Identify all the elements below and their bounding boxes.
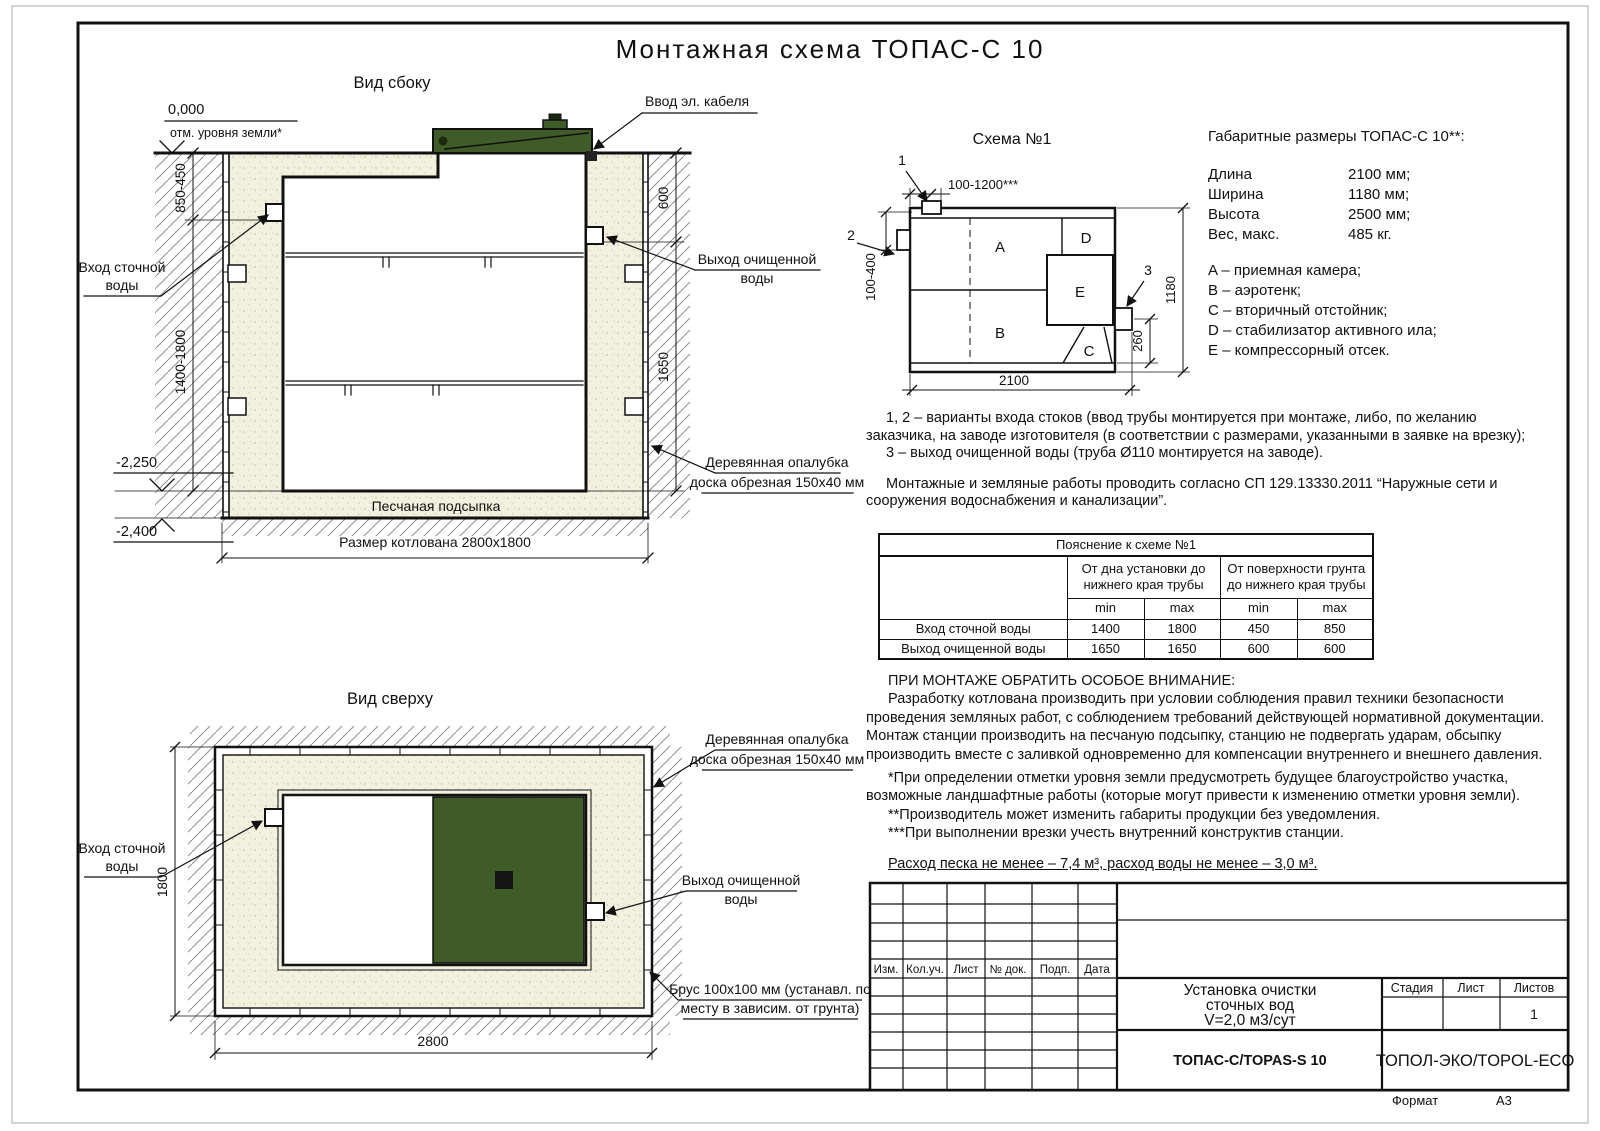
sc-comp-e: E <box>1075 284 1085 301</box>
pipe-table-group2: От поверхности грунта до нижнего края тр… <box>1220 556 1373 598</box>
footnote-3: ***При выполнении врезки учесть внутренн… <box>866 824 1556 842</box>
table-row: Вход сточной воды 1400 1800 450 850 <box>879 619 1373 639</box>
stamp-col-data: Дата <box>1084 964 1110 976</box>
attention-block: ПРИ МОНТАЖЕ ОБРАТИТЬ ОСОБОЕ ВНИМАНИЕ: Ра… <box>866 672 1556 873</box>
lid-vent-base <box>543 120 567 129</box>
specs-title: Габаритные размеры ТОПАС-С 10**: <box>1208 128 1578 145</box>
lid-handle <box>439 137 448 146</box>
company-name: ТОПОЛ-ЭКО/TOPOL-ECO <box>1376 1052 1575 1070</box>
stamp-col-podp: Подп. <box>1040 964 1071 976</box>
spec-row: Ширина 1180 мм; <box>1208 185 1578 205</box>
elevation-zero: 0,000 отм. уровня земли* <box>160 102 297 153</box>
svg-text:Брус 100x100 мм (устанавл. по: Брус 100x100 мм (устанавл. по <box>669 981 871 997</box>
schema-title: Схема №1 <box>973 131 1052 148</box>
svg-text:воды: воды <box>741 270 774 286</box>
compartment-legend: A – приемная камера; B – аэротенк; C – в… <box>1208 261 1578 361</box>
sc-comp-c: C <box>1084 343 1095 360</box>
pipe-table-group1: От дна установки до нижнего края трубы <box>1067 556 1220 598</box>
svg-text:воды: воды <box>725 891 758 907</box>
label-sand: Песчаная подсыпка <box>372 498 501 514</box>
tv-hatch-top <box>190 726 670 747</box>
pipe-table-title: Пояснение к схеме №1 <box>879 534 1373 556</box>
tv-outlet-stub <box>586 903 604 920</box>
sheets-label: Листов <box>1514 981 1555 995</box>
svg-text:воды: воды <box>106 277 139 293</box>
label-cable: Ввод эл. кабеля <box>594 93 757 149</box>
svg-text:Деревянная опалубка: Деревянная опалубка <box>705 731 848 747</box>
note-norms: Монтажные и земляные работы проводить со… <box>866 476 1546 511</box>
svg-text:-2,250: -2,250 <box>116 455 157 471</box>
label-pit-size: Размер котлована 2800x1800 <box>339 534 531 550</box>
pipe-table-corner <box>879 556 1067 619</box>
svg-text:Выход очищенной: Выход очищенной <box>698 251 817 267</box>
tank-lid <box>433 114 597 161</box>
svg-text:Деревянная опалубка: Деревянная опалубка <box>705 454 848 470</box>
spec-row: Длина 2100 мм; <box>1208 165 1578 185</box>
stamp-col-ndok: № док. <box>990 964 1027 976</box>
svg-text:воды: воды <box>106 858 139 874</box>
footnote-2: **Производитель может изменить габариты … <box>866 806 1556 824</box>
top-view-title: Вид сверху <box>347 690 434 708</box>
tank-body <box>283 153 586 491</box>
stamp-col-izm: Изм. <box>874 964 899 976</box>
spec-row: Высота 2500 мм; <box>1208 205 1578 225</box>
model-code: ТОПАС-С/TOPAS-S 10 <box>1173 1053 1326 1069</box>
attention-title: ПРИ МОНТАЖЕ ОБРАТИТЬ ОСОБОЕ ВНИМАНИЕ: <box>866 672 1556 690</box>
sc-dim-left: 100-400 <box>863 253 878 301</box>
svg-text:Вход сточной: Вход сточной <box>79 840 166 856</box>
consumption-note: Расход песка не менее – 7,4 м³, расход в… <box>866 855 1556 873</box>
svg-text:отм. уровня земли*: отм. уровня земли* <box>170 126 282 140</box>
pipe-table: Пояснение к схеме №1 От дна установки до… <box>878 533 1374 660</box>
sc-comp-a: A <box>995 239 1005 256</box>
page-title: Монтажная схема ТОПАС-С 10 <box>616 34 1045 64</box>
dim-outlet-depth: 600 <box>656 187 671 210</box>
table-row: Выход очищенной воды 1650 1650 600 600 <box>879 639 1373 659</box>
note-variants: 1, 2 – варианты входа стоков (ввод трубы… <box>866 410 1546 445</box>
svg-text:Выход очищенной: Выход очищенной <box>682 872 801 888</box>
sc-dim-bottom: 2100 <box>999 373 1029 388</box>
sc-marker-2: 2 <box>847 227 855 243</box>
sc-dim-top: 100-1200*** <box>948 177 1018 192</box>
svg-text:-2,400: -2,400 <box>116 524 157 540</box>
format-value: А3 <box>1496 1093 1512 1108</box>
tv-label-beam: Брус 100x100 мм (устанавл. по месту в за… <box>650 972 871 1019</box>
sc-stub-2 <box>897 230 910 250</box>
inlet-stub <box>266 204 283 221</box>
sc-comp-d: D <box>1081 230 1092 247</box>
svg-text:2800: 2800 <box>417 1033 448 1049</box>
title-block: Изм. Кол.уч. Лист № док. Подп. Дата Уста… <box>870 883 1574 1108</box>
svg-text:Вход сточной: Вход сточной <box>79 259 166 275</box>
stamp-col-koluch: Кол.уч. <box>906 964 944 976</box>
svg-text:Ввод эл. кабеля: Ввод эл. кабеля <box>645 93 749 109</box>
stage-label: Стадия <box>1391 981 1434 995</box>
svg-text:доска обрезная 150x40 мм: доска обрезная 150x40 мм <box>690 474 865 490</box>
dim-inlet-depth: 850-450 <box>173 163 188 213</box>
outlet-stub <box>586 227 603 244</box>
tv-hatch-left <box>188 747 215 1016</box>
format-label: Формат <box>1392 1093 1438 1108</box>
sc-stub-1 <box>922 201 941 214</box>
tv-label-formwork: Деревянная опалубка доска обрезная 150x4… <box>654 731 864 787</box>
tv-inlet-stub <box>265 809 283 826</box>
doc-title-line3: V=2,0 м3/сут <box>1204 1012 1295 1029</box>
tv-hatch-right <box>652 747 682 1016</box>
sheets-value: 1 <box>1530 1006 1538 1022</box>
svg-text:месту в зависим. от грунта): месту в зависим. от грунта) <box>681 1000 860 1016</box>
sc-comp-b: B <box>995 325 1005 342</box>
elevation-pit: -2,400 <box>114 518 233 542</box>
side-view: Вид сбоку <box>79 74 865 563</box>
specs-block: Габаритные размеры ТОПАС-С 10**: Длина 2… <box>1208 128 1578 361</box>
earth-hatch-left <box>155 153 223 518</box>
attention-paragraph: Разработку котлована производить при усл… <box>866 690 1556 764</box>
sheet-label: Лист <box>1457 981 1484 995</box>
sc-stub-3 <box>1115 308 1132 330</box>
notes-block: 1, 2 – варианты входа стоков (ввод трубы… <box>866 410 1546 511</box>
side-view-title: Вид сбоку <box>354 74 432 92</box>
cable-entry-mark <box>586 151 597 161</box>
top-view: Вид сверху 1800 2800 Вход <box>79 690 872 1060</box>
sc-dim-right: 1180 <box>1163 276 1178 304</box>
stamp-col-list: Лист <box>954 964 980 976</box>
svg-text:доска обрезная 150x40 мм: доска обрезная 150x40 мм <box>690 751 865 767</box>
footnote-1: *При определении отметки уровня земли пр… <box>866 769 1556 806</box>
dim-outlet-body: 1650 <box>656 352 671 382</box>
sc-marker-3: 3 <box>1144 262 1152 278</box>
svg-text:0,000: 0,000 <box>168 102 204 118</box>
tv-lid-hatch-square <box>495 871 513 889</box>
schema-1: Схема №1 A B C D E 1 2 3 <box>847 131 1190 396</box>
sc-marker-1: 1 <box>898 152 906 168</box>
spec-row: Вес, макс. 485 кг. <box>1208 225 1578 245</box>
svg-text:1800: 1800 <box>155 867 170 897</box>
dim-body-depth: 1400-1800 <box>173 330 188 395</box>
note-outlet: 3 – выход очищенной воды (труба Ø110 мон… <box>866 445 1546 463</box>
drawing-sheet: Монтажная схема ТОПАС-С 10 Вид сбоку <box>0 0 1600 1131</box>
